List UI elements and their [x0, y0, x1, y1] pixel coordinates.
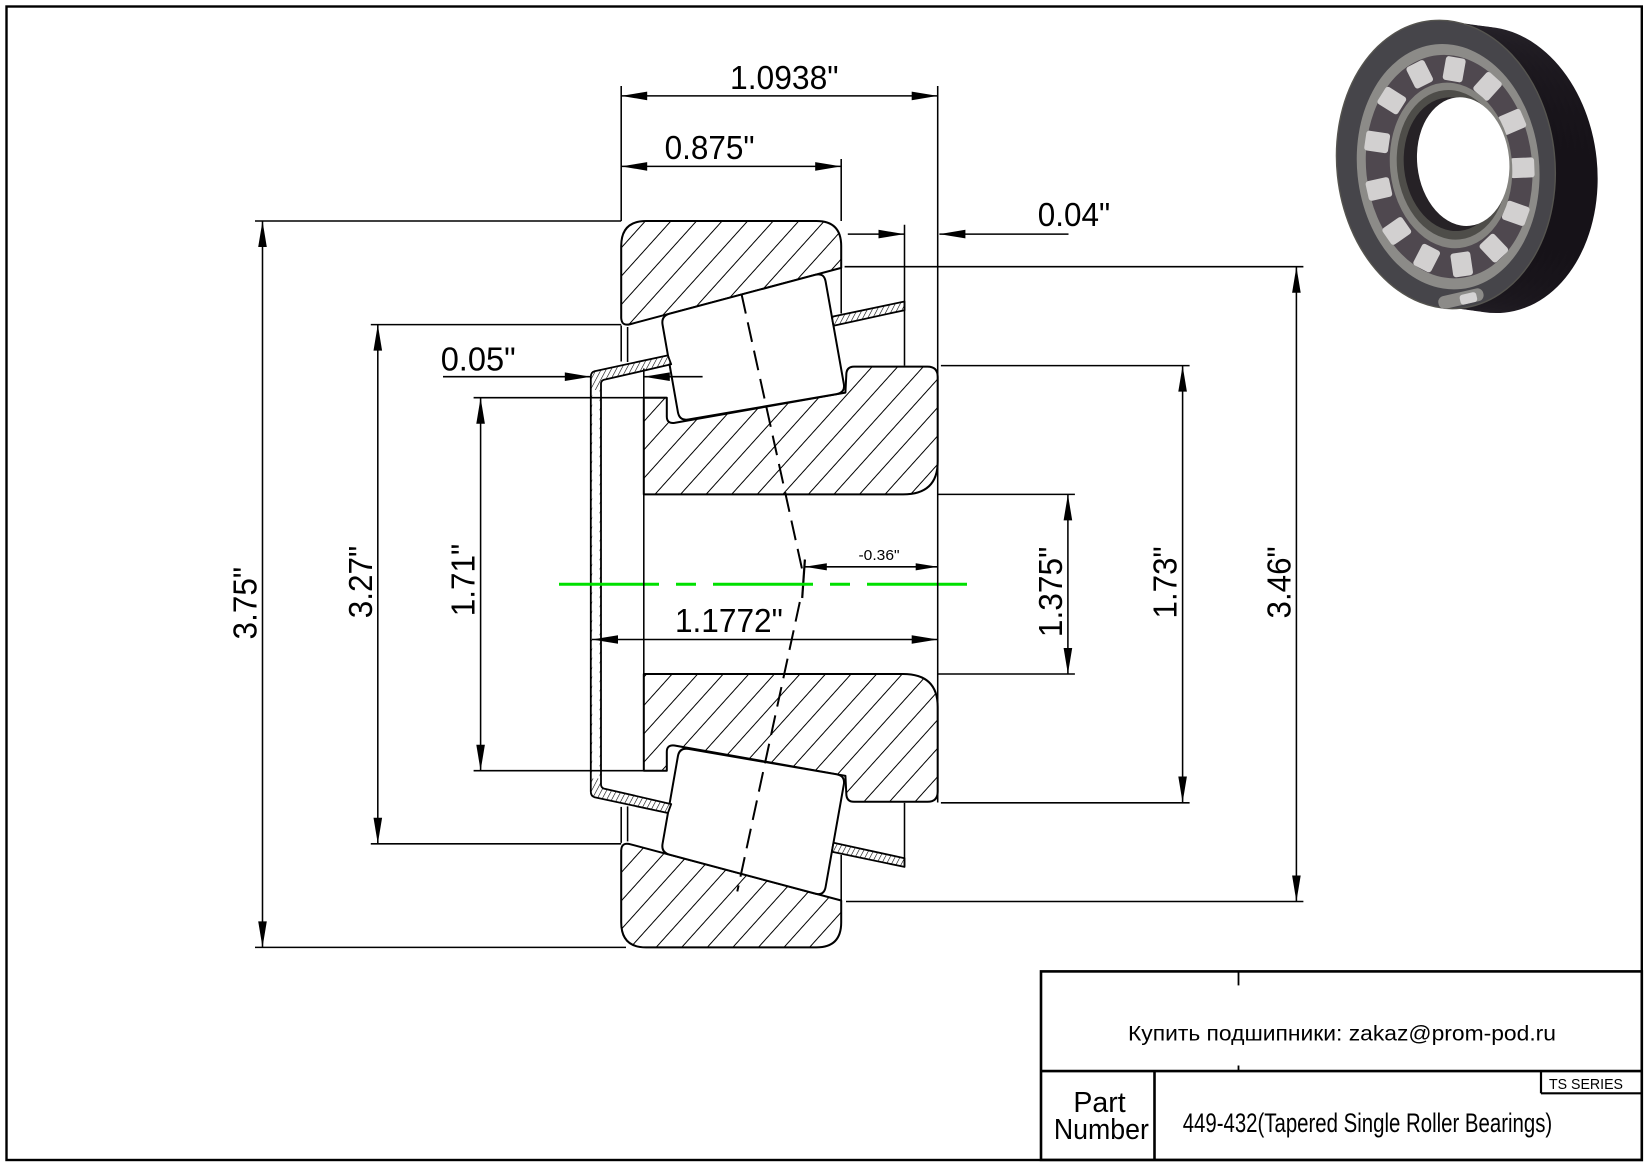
- svg-text:0.05": 0.05": [441, 340, 516, 377]
- svg-text:3.46": 3.46": [1260, 546, 1297, 618]
- svg-text:Купить подшипники: zakaz@prom-: Купить подшипники: zakaz@prom-pod.ru: [1128, 1022, 1556, 1045]
- svg-text:1.0938": 1.0938": [730, 59, 839, 96]
- svg-text:3.75": 3.75": [227, 567, 264, 640]
- svg-text:1.375": 1.375": [1032, 547, 1069, 637]
- svg-text:1.73": 1.73": [1147, 546, 1184, 618]
- svg-text:TS SERIES: TS SERIES: [1549, 1076, 1623, 1093]
- svg-text:1.71": 1.71": [445, 544, 482, 617]
- svg-text:Number: Number: [1054, 1114, 1149, 1146]
- svg-text:-0.36": -0.36": [859, 547, 900, 564]
- svg-text:449-432(Tapered Single Roller: 449-432(Tapered Single Roller Bearings): [1183, 1108, 1553, 1138]
- svg-text:0.04": 0.04": [1038, 196, 1110, 233]
- svg-text:3.27": 3.27": [342, 546, 379, 619]
- svg-text:1.1772": 1.1772": [675, 602, 783, 639]
- svg-text:0.875": 0.875": [665, 129, 755, 166]
